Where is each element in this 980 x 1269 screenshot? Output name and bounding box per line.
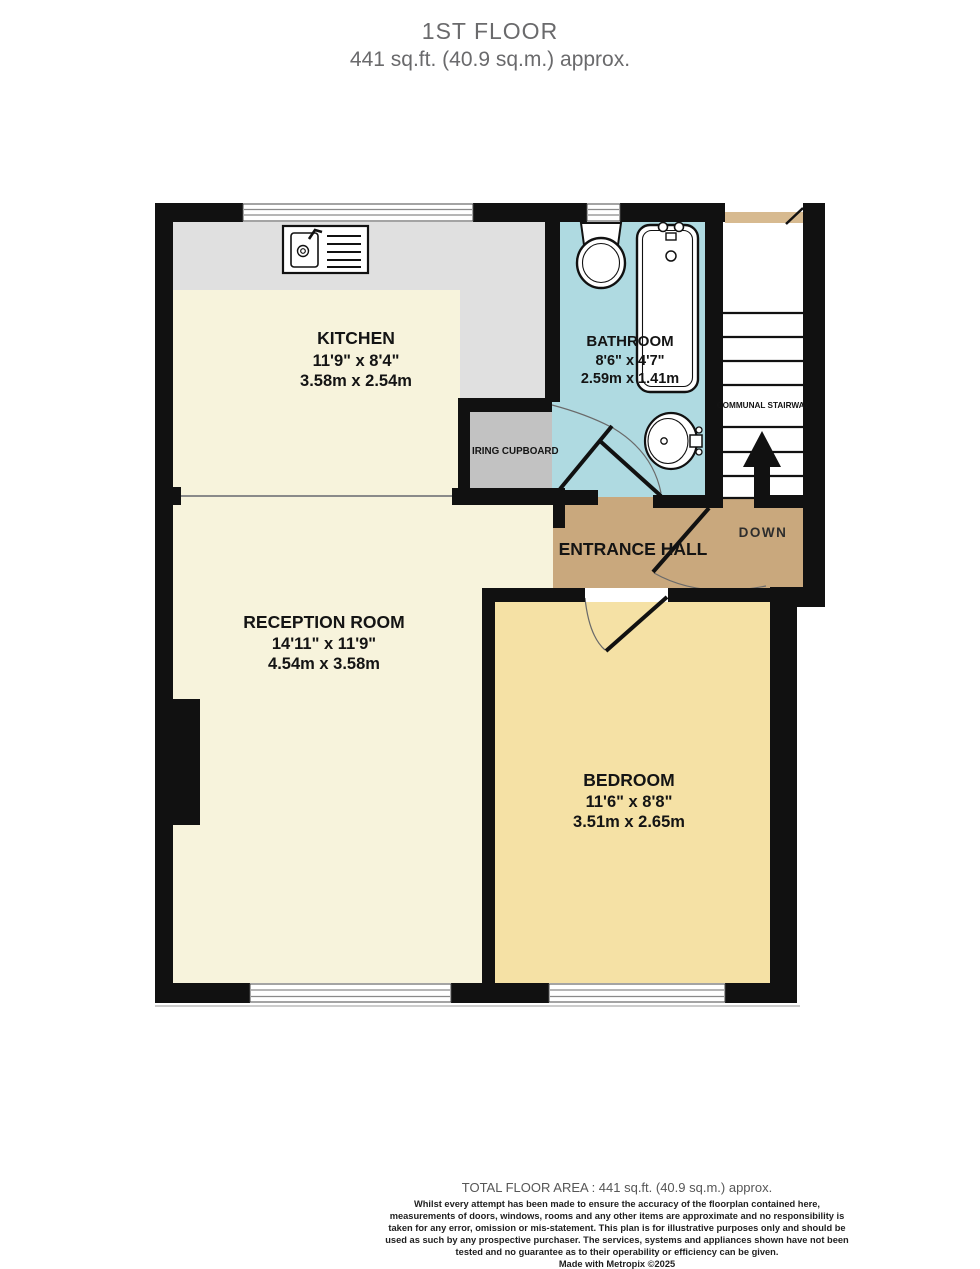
basin-tap-icon (690, 435, 702, 447)
communal-stairway-label: COMMUNAL STAIRWAY (717, 401, 810, 410)
bath-tap-icon (675, 223, 684, 232)
bedroom-label: BEDROOM (583, 770, 674, 790)
bedroom-dims-metric: 3.51m x 2.65m (573, 813, 685, 831)
wall-top-mid (473, 203, 587, 222)
kitchen-label: KITCHEN (317, 328, 395, 348)
stair-direction-arrow-stem (754, 463, 770, 508)
wall-top-right (620, 203, 725, 222)
wall-bathroom-stairs (705, 222, 723, 508)
floorplan: KITCHEN 11'9" x 8'4" 3.58m x 2.54m BATHR… (0, 0, 980, 1255)
wall-bathroom-bottom-right (653, 495, 723, 508)
wall-cupboard-bottom (452, 488, 565, 505)
reception-window (250, 984, 451, 1002)
wall-stairs-bottom (768, 495, 803, 508)
basin-tap-icon (696, 427, 702, 433)
total-floor-area: TOTAL FLOOR AREA : 441 sq.ft. (40.9 sq.m… (382, 1180, 852, 1195)
bathroom-dims-metric: 2.59m x 1.41m (581, 371, 679, 387)
wall-left-stub (155, 487, 181, 505)
wall-bedroom-top-right (668, 588, 770, 602)
metropix-credit: Made with Metropix ©2025 (382, 1259, 852, 1269)
bedroom-window (549, 984, 725, 1002)
bath-spout-icon (666, 233, 676, 240)
reception-label: RECEPTION ROOM (243, 612, 404, 632)
wall-bedroom-top-left (482, 588, 585, 602)
bathroom-label: BATHROOM (586, 333, 673, 350)
bedroom-dims-imperial: 11'6" x 8'8" (586, 793, 673, 811)
kitchen-window (243, 204, 473, 221)
wall-reception-bedroom (482, 588, 495, 1003)
chimney-breast (173, 699, 200, 825)
footer: TOTAL FLOOR AREA : 441 sq.ft. (40.9 sq.m… (382, 1180, 852, 1269)
reception-dims-imperial: 14'11" x 11'9" (272, 635, 376, 653)
wall-bedroom-right (770, 588, 797, 1003)
wall-bottom-left (155, 983, 250, 1003)
wall-cupboard-top (458, 398, 552, 412)
toilet (577, 223, 625, 288)
stairs-down-label: DOWN (739, 525, 788, 540)
bath-tap-icon (659, 223, 668, 232)
bathroom-dims-imperial: 8'6" x 4'7" (595, 353, 664, 369)
wall-bathroom-bottom-left (557, 490, 598, 505)
basin-tap-icon (696, 449, 702, 455)
wall-kitchen-bathroom (545, 222, 560, 402)
kitchen-dims-metric: 3.58m x 2.54m (300, 372, 412, 390)
landing-strip-white (725, 203, 803, 213)
entrance-hall-label: ENTRANCE HALL (559, 539, 708, 559)
bathroom-window (587, 204, 620, 221)
reception-dims-metric: 4.54m x 3.58m (268, 655, 380, 673)
kitchen-dims-imperial: 11'9" x 8'4" (313, 352, 400, 370)
wall-bottom-mid (451, 983, 549, 1003)
wall-left (155, 203, 173, 1003)
kitchen-counter-right (460, 222, 545, 400)
disclaimer-text: Whilst every attempt has been made to en… (382, 1199, 852, 1258)
airing-cupboard-label: IRING CUPBOARD (472, 446, 559, 457)
kitchen-sink (283, 226, 368, 273)
